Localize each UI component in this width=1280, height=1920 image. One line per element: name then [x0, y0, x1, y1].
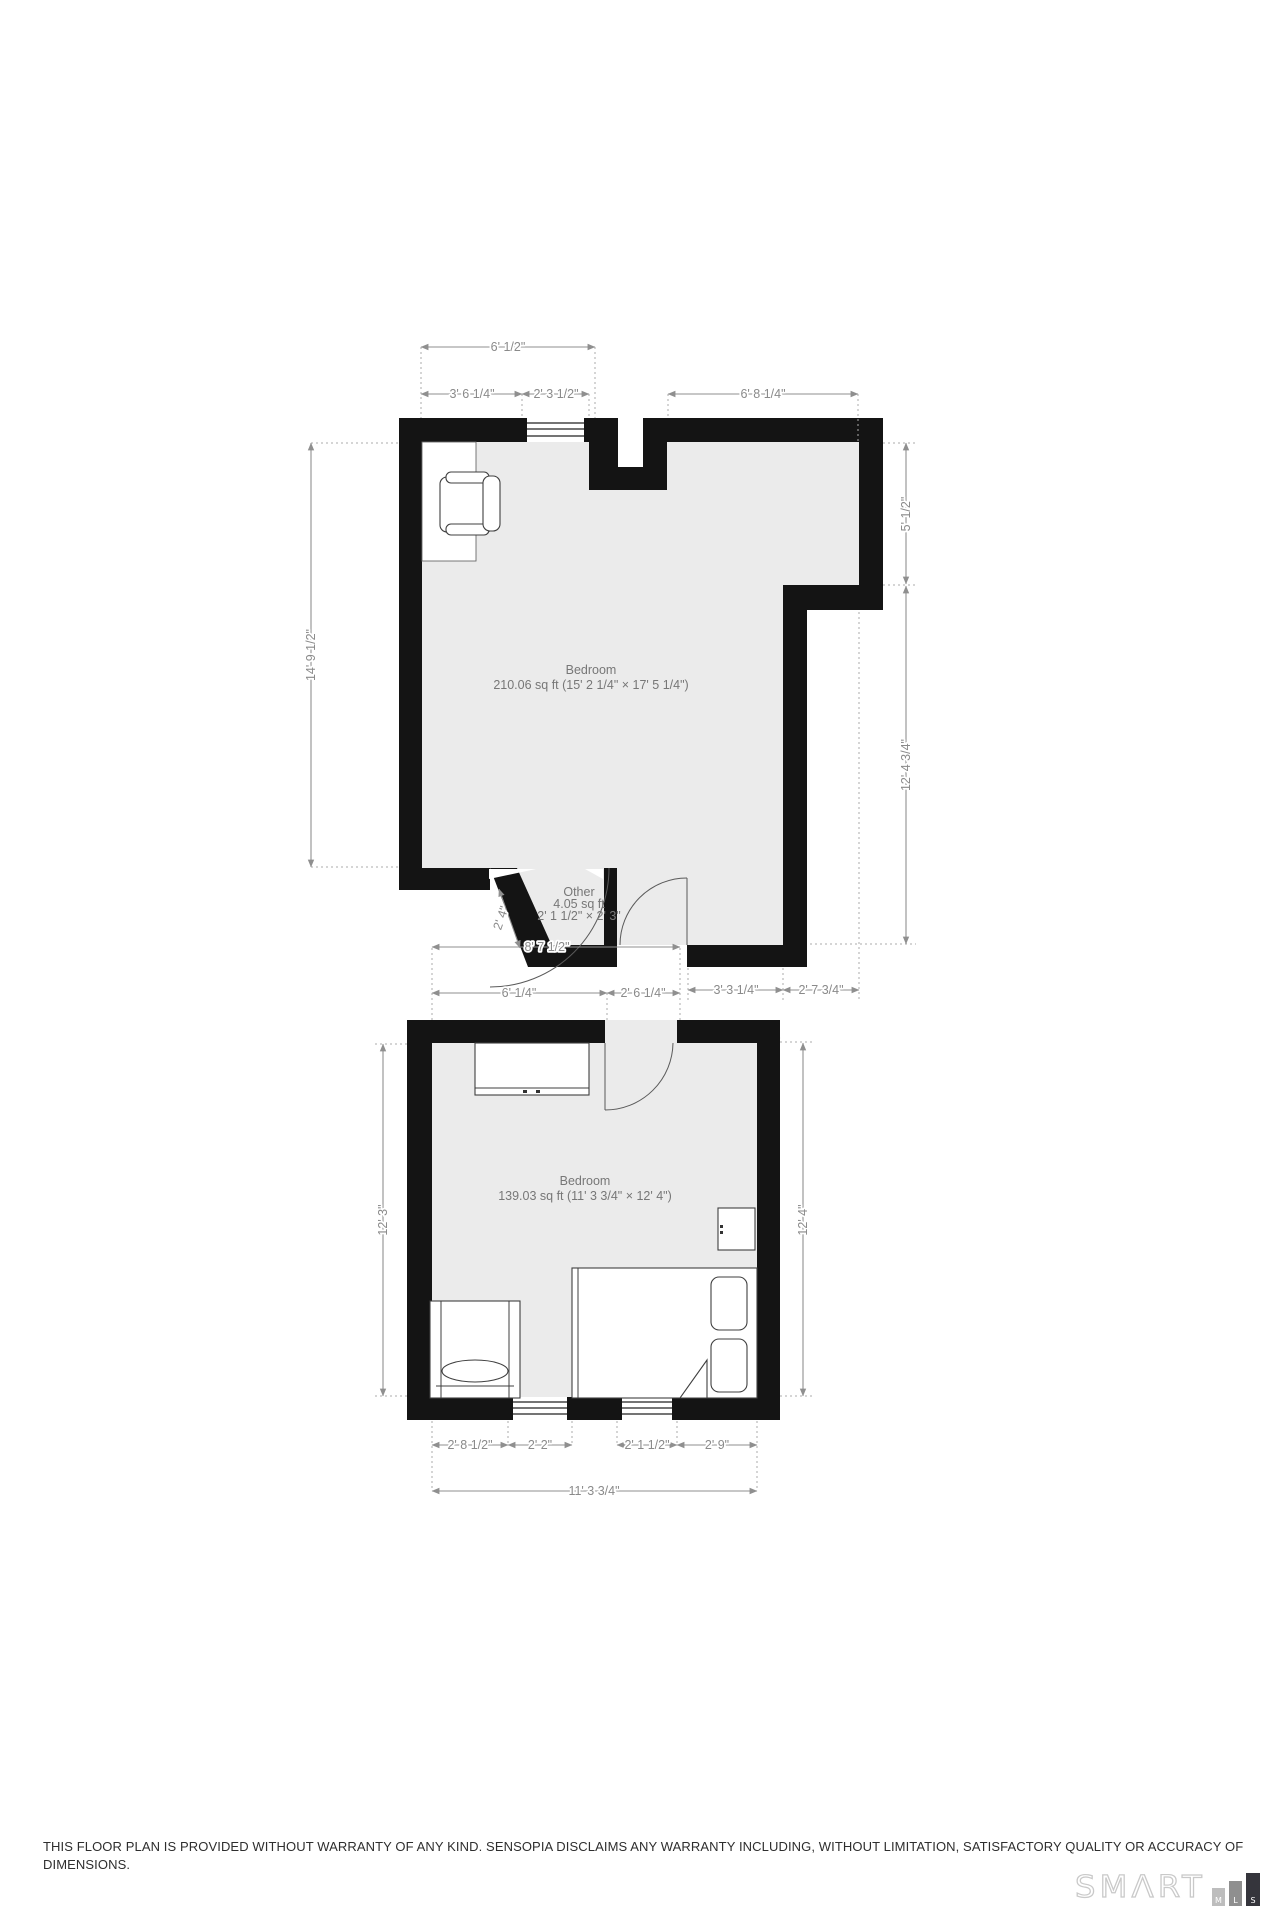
- dim-upper-right-upper: 5' 1/2": [899, 497, 913, 532]
- floor-plan-canvas: Bedroom 210.06 sq ft (15' 2 1/4" × 17' 5…: [0, 0, 1280, 1920]
- dim-lower-bottom-total: 11' 3 3/4": [568, 1484, 619, 1498]
- dim-lower-left-height: 12' 3": [376, 1204, 390, 1235]
- lower-room-area: 139.03 sq ft (11' 3 3/4" × 12' 4"): [498, 1189, 672, 1203]
- window-icon: [522, 418, 589, 442]
- nightstand-icon: [718, 1208, 755, 1250]
- dresser-icon: [475, 1043, 589, 1095]
- logo-blocks: M L S: [1212, 1873, 1260, 1906]
- window-icon: [508, 1397, 572, 1420]
- logo-letter-s: S: [1250, 1896, 1255, 1905]
- wall-niche: [618, 418, 643, 467]
- smartmls-logo: SMΛRT M L S: [1075, 1866, 1270, 1906]
- dim-upper-door-width: 2' 4": [490, 904, 511, 931]
- dim-upper-left-height: 14' 9 1/2": [304, 629, 318, 681]
- dim-upper-top-left: 3' 6 1/4": [449, 387, 494, 401]
- dim-upper-top-total: 6' 1/2": [491, 340, 526, 354]
- dim-lower-bottom-b: 2' 2": [528, 1438, 552, 1452]
- lower-plan: Bedroom 139.03 sq ft (11' 3 3/4" × 12' 4…: [375, 1020, 813, 1498]
- upper-plan: Bedroom 210.06 sq ft (15' 2 1/4" × 17' 5…: [304, 340, 916, 1045]
- dim-lower-bottom-c: 2' 1 1/2": [624, 1438, 669, 1452]
- dim-upper-bottom-left: 6' 1/4": [502, 986, 537, 1000]
- armchair-icon: [440, 472, 500, 535]
- upper-room-area: 210.06 sq ft (15' 2 1/4" × 17' 5 1/4"): [493, 678, 688, 692]
- floor-plan-page: { "colors": { "wall": "#141414", "floor"…: [0, 0, 1280, 1920]
- dim-upper-bottom-span: 8' 7 1/2": [524, 940, 569, 954]
- logo-letter-l: L: [1233, 1896, 1238, 1905]
- dim-lower-bottom-d: 2' 9": [705, 1438, 729, 1452]
- disclaimer-line-1: THIS FLOOR PLAN IS PROVIDED WITHOUT WARR…: [43, 1838, 1253, 1856]
- dim-upper-top-right: 6' 8 1/4": [740, 387, 785, 401]
- double-bed-icon: [572, 1268, 757, 1398]
- dim-upper-bottom-door: 2' 6 1/4": [620, 986, 665, 1000]
- upper-room-name: Bedroom: [566, 663, 617, 677]
- disclaimer-text: THIS FLOOR PLAN IS PROVIDED WITHOUT WARR…: [43, 1838, 1253, 1874]
- dim-upper-bottom-right-a: 3' 3 1/4": [713, 983, 758, 997]
- door-threshold: [605, 1020, 677, 1043]
- window-icon: [617, 1397, 677, 1420]
- dim-lower-right-height: 12' 4": [796, 1204, 810, 1235]
- logo-letter-m: M: [1215, 1896, 1222, 1905]
- dim-upper-bottom-right-b: 2' 7 3/4": [798, 983, 843, 997]
- logo-wordmark: SMΛRT: [1075, 1870, 1206, 1905]
- dim-upper-right-lower: 12' 4 3/4": [899, 739, 913, 791]
- single-bed-icon: [430, 1301, 520, 1398]
- dim-lower-bottom-a: 2' 8 1/2": [447, 1438, 492, 1452]
- other-room-size: 2' 1 1/2" × 2' 3": [537, 909, 621, 923]
- dim-upper-top-window: 2' 3 1/2": [533, 387, 578, 401]
- disclaimer-line-2: DIMENSIONS.: [43, 1856, 1253, 1874]
- lower-room-name: Bedroom: [560, 1174, 611, 1188]
